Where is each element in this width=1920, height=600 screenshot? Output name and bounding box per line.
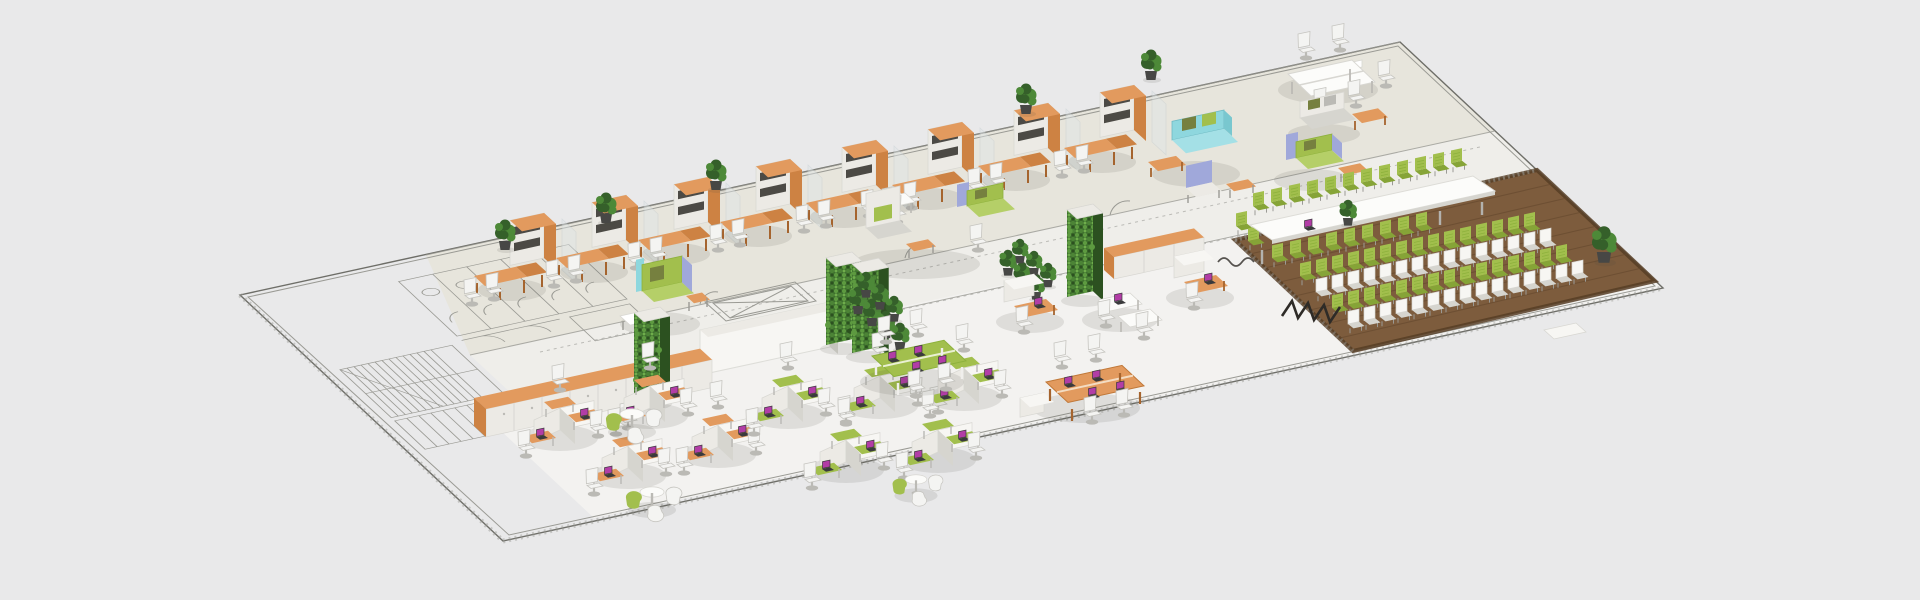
- isometric-office-scene: [0, 0, 1920, 600]
- floorplan-render: [0, 0, 1920, 600]
- living-wall-column: [1061, 204, 1105, 307]
